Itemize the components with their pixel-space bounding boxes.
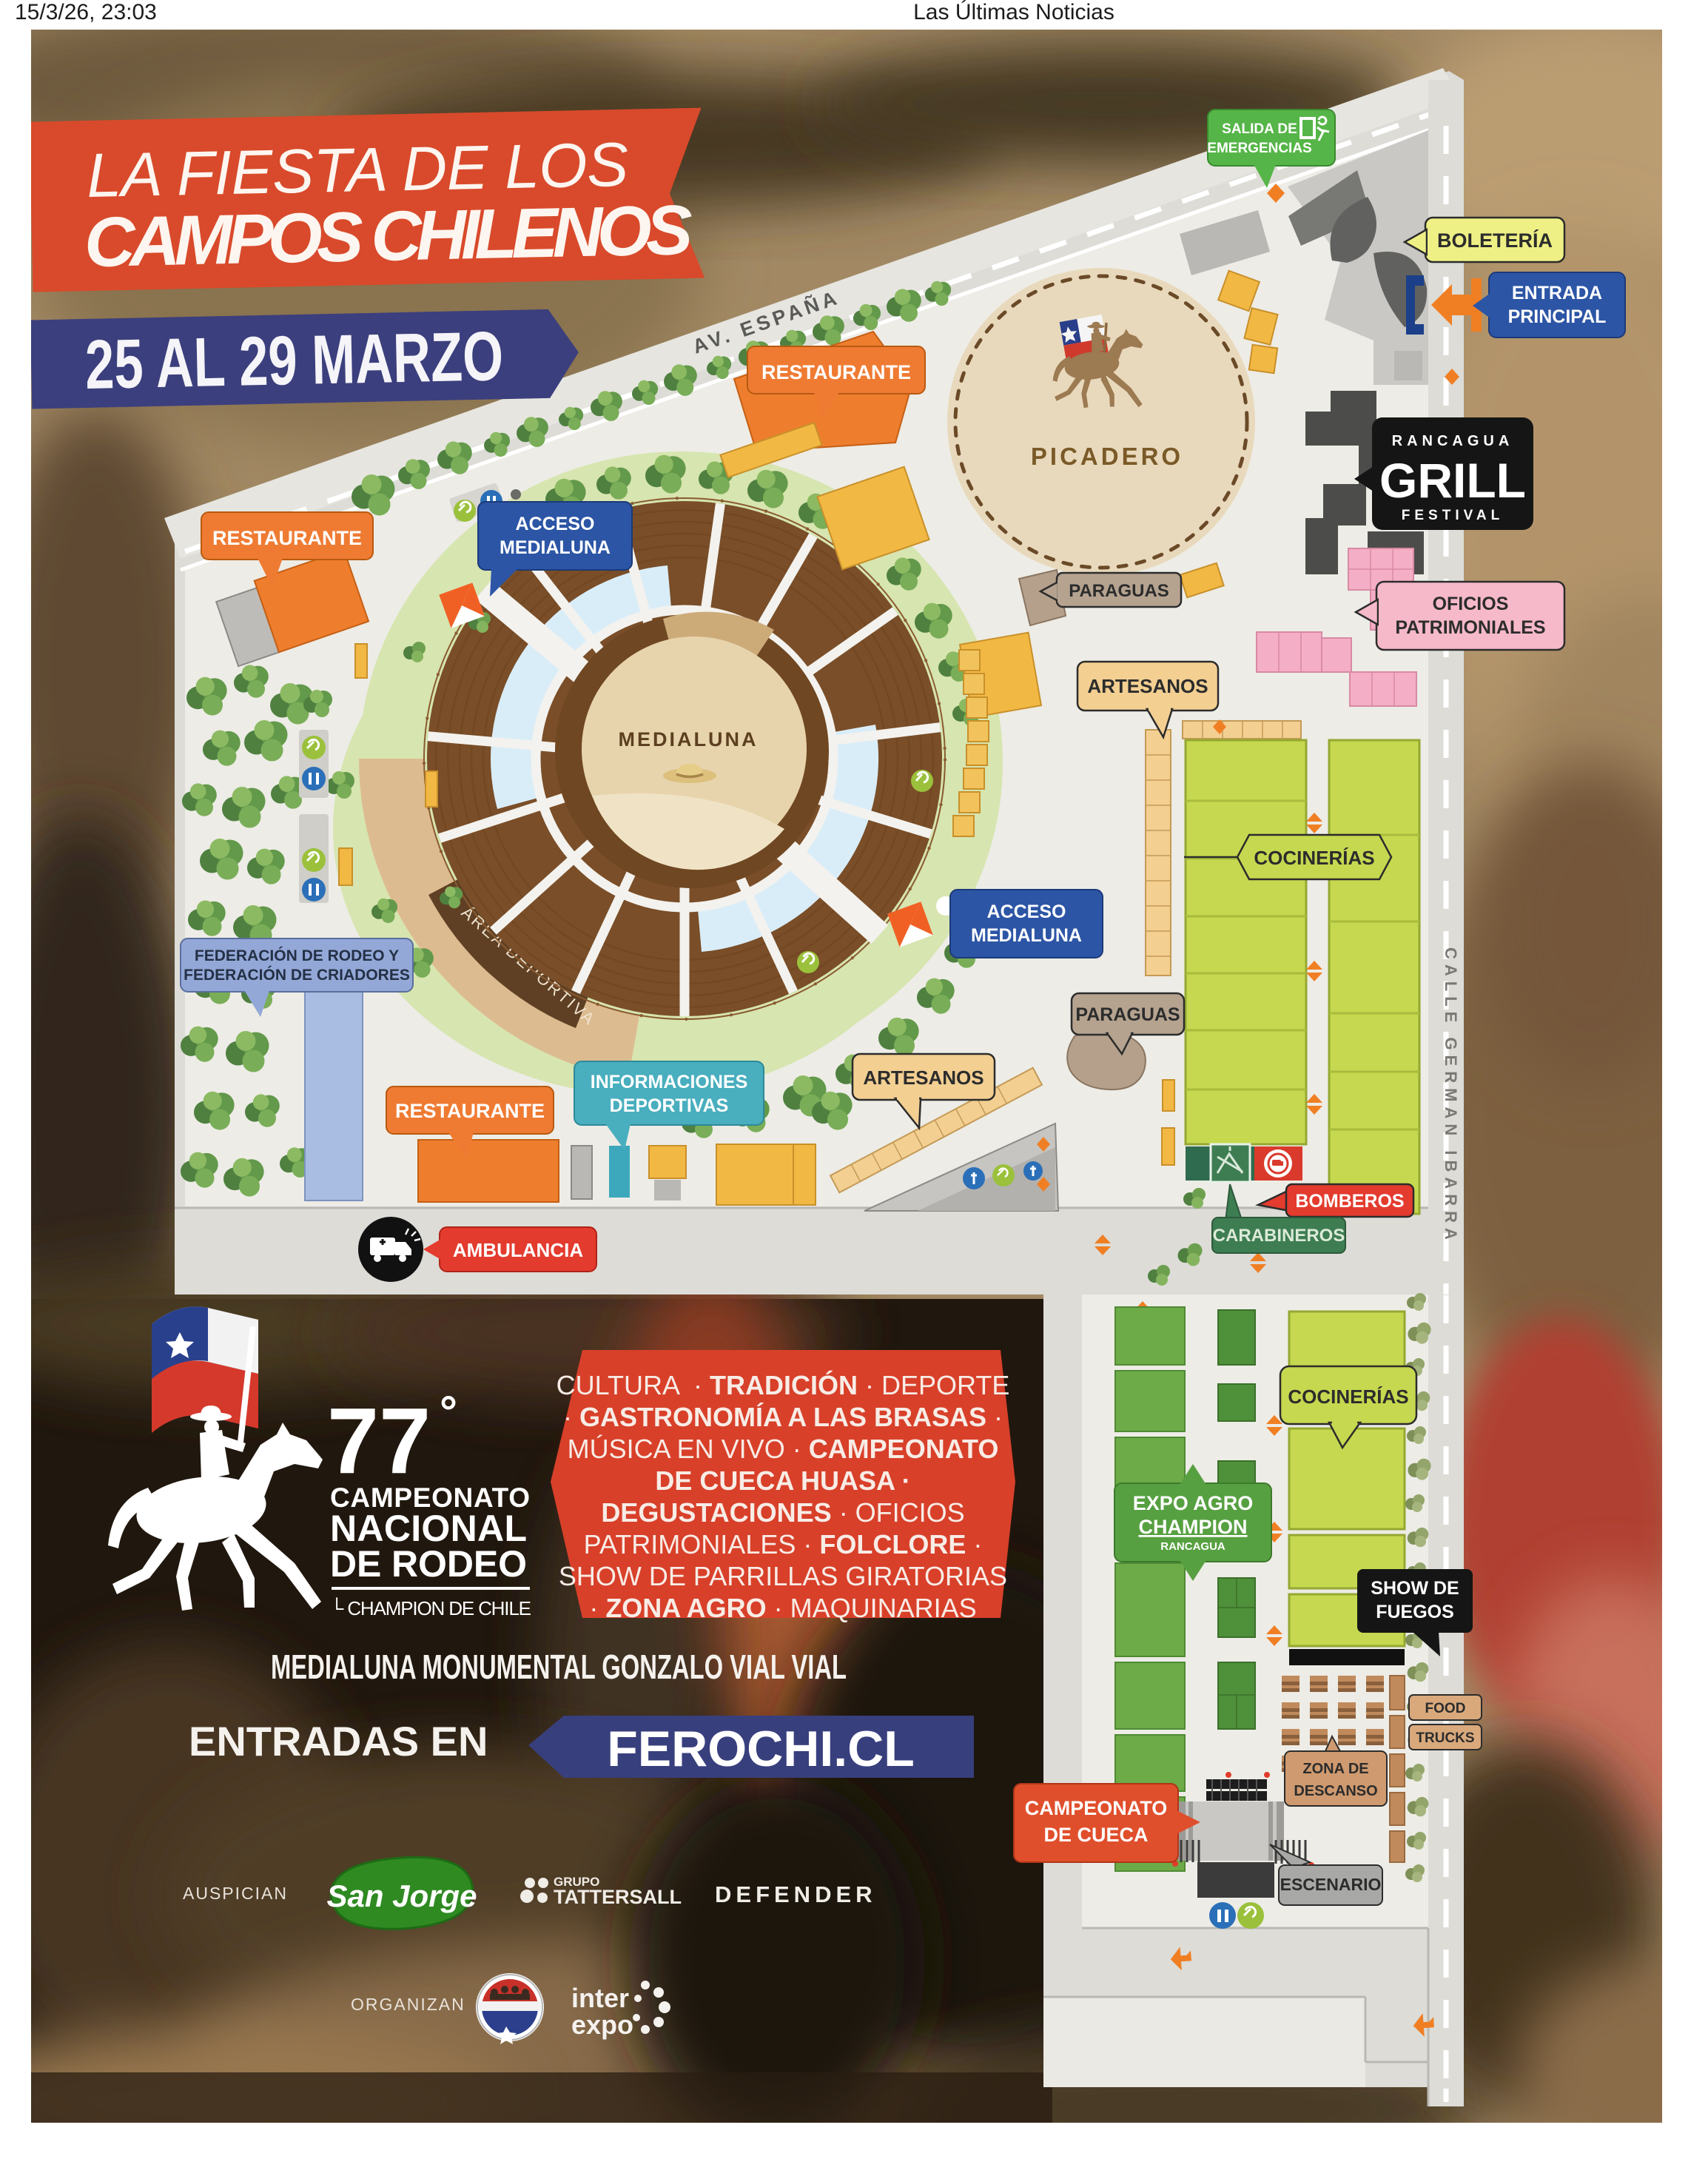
svg-text:· ZONA AGRO · MAQUINARIAS: · ZONA AGRO · MAQUINARIAS [589, 1593, 976, 1623]
svg-text:COCINERÍAS: COCINERÍAS [1288, 1386, 1408, 1408]
svg-text:DEGUSTACIONES · OFICIOS: DEGUSTACIONES · OFICIOS [601, 1497, 964, 1528]
svg-text:DE CUECA HUASA ·: DE CUECA HUASA · [655, 1465, 910, 1496]
svg-text:PARAGUAS: PARAGUAS [1075, 1004, 1180, 1025]
svg-text:ARTESANOS: ARTESANOS [1087, 675, 1208, 697]
svg-text:ARTESANOS: ARTESANOS [863, 1067, 984, 1089]
svg-text:expo: expo [571, 2009, 633, 2040]
svg-text:OFICIOS: OFICIOS [1433, 594, 1509, 614]
svg-text:CAMPEONATO: CAMPEONATO [1025, 1797, 1168, 1819]
svg-text:MEDIALUNA: MEDIALUNA [500, 537, 611, 558]
svg-text:ENTRADAS EN: ENTRADAS EN [189, 1718, 488, 1764]
svg-text:RANCAGUA: RANCAGUA [1160, 1540, 1225, 1553]
svg-text:MÚSICA EN VIVO · CAMPEONATO: MÚSICA EN VIVO · CAMPEONATO [568, 1434, 999, 1464]
svg-text:FOOD: FOOD [1425, 1701, 1466, 1716]
svg-text:EXPO AGRO: EXPO AGRO [1133, 1492, 1254, 1514]
svg-text:TRUCKS: TRUCKS [1416, 1730, 1474, 1746]
svg-text:RESTAURANTE: RESTAURANTE [761, 361, 911, 383]
svg-text:GRILL: GRILL [1379, 453, 1526, 508]
svg-text:DEFENDER: DEFENDER [715, 1881, 877, 1907]
svg-text:PRINCIPAL: PRINCIPAL [1508, 306, 1607, 327]
svg-text:CHAMPION: CHAMPION [1139, 1516, 1248, 1538]
svg-text:25 AL 29 MARZO: 25 AL 29 MARZO [84, 317, 504, 403]
svg-text:SHOW DE: SHOW DE [1371, 1578, 1459, 1599]
svg-text:ACCESO: ACCESO [987, 901, 1066, 922]
svg-text:INFORMACIONES: INFORMACIONES [591, 1072, 748, 1092]
svg-text:DE CUECA: DE CUECA [1043, 1824, 1148, 1846]
svg-text:CULTURA · TRADICIÓN · DEPORTE: CULTURA · TRADICIÓN · DEPORTE [557, 1369, 1010, 1400]
svg-text:AMBULANCIA: AMBULANCIA [453, 1239, 583, 1261]
svg-text:└ CHAMPION DE CHILE: └ CHAMPION DE CHILE [330, 1597, 531, 1619]
svg-text:ESCENARIO: ESCENARIO [1280, 1875, 1382, 1894]
svg-text:77: 77 [327, 1388, 431, 1493]
svg-text:ZONA DE: ZONA DE [1302, 1761, 1368, 1777]
svg-text:PARAGUAS: PARAGUAS [1069, 581, 1169, 601]
svg-text:San Jorge: San Jorge [326, 1878, 477, 1913]
svg-text:CARABINEROS: CARABINEROS [1213, 1226, 1345, 1246]
svg-text:SALIDA DE: SALIDA DE [1222, 121, 1297, 137]
svg-text:COCINERÍAS: COCINERÍAS [1254, 847, 1374, 869]
svg-text:FEROCHI.CL: FEROCHI.CL [607, 1721, 915, 1777]
svg-text:FESTIVAL: FESTIVAL [1402, 508, 1504, 523]
svg-text:Las Últimas Noticias: Las Últimas Noticias [913, 0, 1114, 24]
svg-text:TATTERSALL: TATTERSALL [554, 1886, 682, 1908]
svg-text:DESCANSO: DESCANSO [1294, 1783, 1377, 1799]
svg-text:RESTAURANTE: RESTAURANTE [212, 527, 362, 549]
svg-text:PATRIMONIALES · FOLCLORE ·: PATRIMONIALES · FOLCLORE · [584, 1529, 983, 1559]
svg-text:MEDIALUNA: MEDIALUNA [619, 728, 759, 750]
svg-text:BOLETERÍA: BOLETERÍA [1437, 229, 1553, 252]
svg-text:inter: inter [571, 1983, 629, 2013]
svg-text:PICADERO: PICADERO [1031, 443, 1183, 470]
svg-text:BOMBEROS: BOMBEROS [1295, 1191, 1404, 1212]
svg-text:MEDIALUNA: MEDIALUNA [971, 925, 1082, 946]
svg-text:CAMPOS CHILENOS: CAMPOS CHILENOS [84, 191, 693, 282]
svg-text:MEDIALUNA MONUMENTAL GONZALO V: MEDIALUNA MONUMENTAL GONZALO VIAL VIAL [271, 1648, 847, 1686]
svg-text:SHOW DE PARRILLAS GIRATORIAS: SHOW DE PARRILLAS GIRATORIAS [559, 1561, 1007, 1591]
svg-text:15/3/26, 23:03: 15/3/26, 23:03 [15, 0, 157, 24]
svg-text:RANCAGUA: RANCAGUA [1392, 433, 1514, 449]
svg-text:RESTAURANTE: RESTAURANTE [395, 1100, 545, 1122]
svg-text:DE RODEO: DE RODEO [330, 1543, 527, 1585]
svg-text:EMERGENCIAS: EMERGENCIAS [1207, 141, 1311, 156]
svg-text:FUEGOS: FUEGOS [1376, 1602, 1454, 1622]
svg-text:FEDERACIÓN DE CRIADORES: FEDERACIÓN DE CRIADORES [184, 966, 410, 984]
svg-text:· GASTRONOMÍA A LAS BRASAS ·: · GASTRONOMÍA A LAS BRASAS · [563, 1402, 1003, 1432]
svg-text:AUSPICIAN: AUSPICIAN [183, 1884, 288, 1903]
svg-text:CALLE GERMAN IBARRA: CALLE GERMAN IBARRA [1442, 947, 1460, 1245]
svg-text:PATRIMONIALES: PATRIMONIALES [1395, 617, 1545, 638]
svg-text:ENTRADA: ENTRADA [1512, 283, 1602, 303]
svg-text:DEPORTIVAS: DEPORTIVAS [610, 1095, 729, 1116]
svg-text:FEDERACIÓN DE RODEO Y: FEDERACIÓN DE RODEO Y [195, 947, 399, 964]
svg-text:ORGANIZAN: ORGANIZAN [351, 1995, 465, 2014]
svg-text:ACCESO: ACCESO [516, 514, 595, 534]
svg-text:°: ° [440, 1387, 457, 1437]
